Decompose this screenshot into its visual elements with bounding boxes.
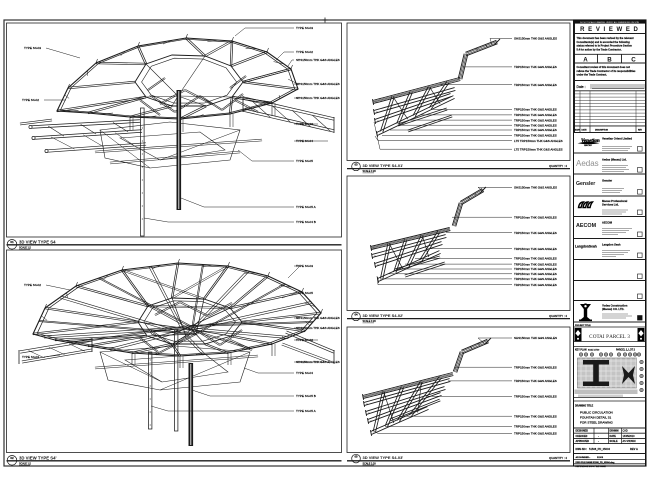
svg-text:DATE: DATE [582,129,588,132]
svg-text:02: 02 [10,456,14,460]
svg-text:REV A: REV A [630,447,638,451]
svg-text:SHS150mm THK G&S ANGLES: SHS150mm THK G&S ANGLES [296,360,340,364]
svg-text:TYPE S4-02: TYPE S4-02 [22,98,39,102]
svg-text:TYPE S4-02: TYPE S4-02 [296,50,313,54]
svg-text:TRP150mm THK G&S ANGLES: TRP150mm THK G&S ANGLES [514,257,557,261]
svg-text:FOR STEEL DRAWING: FOR STEEL DRAWING [580,421,613,425]
svg-text:FOUNTAIN DETAIL 31: FOUNTAIN DETAIL 31 [580,416,612,420]
svg-text:under the Trade Contract.: under the Trade Contract. [577,74,608,77]
svg-text:Langdon Seah: Langdon Seah [602,243,621,247]
svg-text:TYPE S4-05 A: TYPE S4-05 A [296,409,317,413]
svg-text:TRP150mm THK G&S ANGLES: TRP150mm THK G&S ANGLES [514,379,557,383]
svg-text:TRP150mm THK G&S ANGLES: TRP150mm THK G&S ANGLES [514,108,557,112]
svg-text:-: - [598,440,599,443]
svg-text:Consultant review of this docu: Consultant review of this document does … [577,66,631,69]
svg-text:3D VIEW TYPE S4': 3D VIEW TYPE S4' [19,455,57,460]
svg-text:TYPE S4-03: TYPE S4-03 [296,26,313,30]
svg-text:KEY PLAN: KEY PLAN [575,349,587,352]
svg-text:SHS150mm THK G&S ANGLES: SHS150mm THK G&S ANGLES [296,58,340,62]
svg-text:3D VIEW TYPE S4-02': 3D VIEW TYPE S4-02' [363,313,404,318]
svg-text:Consultants(s) and is accorded: Consultants(s) and is accorded the follo… [577,41,631,44]
svg-text:TRP150mm THK G&S ANGLES: TRP150mm THK G&S ANGLES [514,425,557,429]
svg-text:C OTAI P ARCEL 3: C OTAI P ARCEL 3 [589,335,630,340]
svg-text:TRP150mm THK G&S ANGLES: TRP150mm THK G&S ANGLES [514,65,557,69]
svg-text:51508_PD_05004: 51508_PD_05004 [589,447,610,451]
svg-text:TYPE S4-04 B: TYPE S4-04 B [296,220,316,224]
svg-text:3D VIEW TYPE S4: 3D VIEW TYPE S4 [19,239,56,244]
svg-text:QUANTITY : 4: QUANTITY : 4 [549,314,567,318]
svg-text:relieve the Trade Contractor o: relieve the Trade Contractor of its resp… [577,70,637,73]
svg-text:SHS150mm THK G&S ANGLES: SHS150mm THK G&S ANGLES [296,316,340,320]
svg-text:CAD: CAD [623,430,628,433]
svg-text:04: 04 [354,312,358,316]
svg-text:TRP150mm THK G&S ANGLES: TRP150mm THK G&S ANGLES [514,395,557,399]
svg-text:status referred to in Projec: status referred to in Project Procedure … [577,45,633,48]
svg-text:REFERENCE DWG FILE NAME: REFERENCE DWG FILE NAME [576,465,607,468]
svg-text:-: - [598,435,599,438]
svg-text:PUBLIC CIRCULATION: PUBLIC CIRCULATION [580,411,613,415]
svg-text:SCALE 1:2: SCALE 1:2 [19,247,31,250]
svg-text:TRP150mm THK G&S ANGLES: TRP150mm THK G&S ANGLES [514,365,557,369]
svg-text:SHS150mm THK G&S ANGLES: SHS150mm THK G&S ANGLES [296,82,340,86]
svg-text:APPROVED: APPROVED [576,440,590,443]
svg-text:Gensler: Gensler [602,179,612,183]
svg-text:Date :: Date : [577,85,586,89]
svg-text:03: 03 [354,162,358,166]
svg-text:TRP150mm THK G&S ANGLES: TRP150mm THK G&S ANGLES [514,262,557,266]
svg-text:SHS150mm THK G&S ANGLES: SHS150mm THK G&S ANGLES [514,336,557,340]
svg-text:AR NUMBER :: AR NUMBER : [576,456,591,459]
svg-text:DATE: DATE [610,435,617,438]
svg-text:TRP150mm THK G&S ANGLES: TRP150mm THK G&S ANGLES [514,267,557,271]
svg-text:TYPE S4-05: TYPE S4-05 [296,159,313,163]
svg-text:TRP150mm THK G&S ANGLES: TRP150mm THK G&S ANGLES [514,83,557,87]
svg-text:TRP150mm THK G&S ANGLES: TRP150mm THK G&S ANGLES [514,118,557,122]
svg-text:AS SHOWN: AS SHOWN [623,440,636,443]
svg-text:A: A [583,56,588,63]
svg-text:TYPE S4-02: TYPE S4-02 [296,338,313,342]
svg-text:Macau Professional: Macau Professional [602,199,627,203]
svg-text:51508: 51508 [597,457,604,459]
svg-text:TRP150mm THK G&S ANGLES: TRP150mm THK G&S ANGLES [514,113,557,117]
svg-text:C: C [631,56,636,63]
svg-text:R E V I E W E D: R E V I E W E D [580,27,639,33]
svg-text:QUANTITY : 4: QUANTITY : 4 [549,164,567,168]
svg-text:TRP150mm THK G&S ANGLES: TRP150mm THK G&S ANGLES [514,247,557,251]
svg-text:REV: REV [638,130,643,132]
svg-text:TYPE S4-03: TYPE S4-03 [22,355,39,359]
svg-text:DWG FILE NAME 51508_PD_05004.d: DWG FILE NAME 51508_PD_05004.dwg [576,461,616,464]
svg-text:DWG NO :: DWG NO : [576,448,588,451]
svg-text:TYPE S4-05 A: TYPE S4-05 A [296,205,317,209]
svg-text:Gensler: Gensler [576,181,595,187]
svg-text:TYPE S4-03: TYPE S4-03 [296,122,313,126]
svg-text:MACAU: MACAU [584,144,592,147]
svg-text:(Macau) CO. LTD.: (Macau) CO. LTD. [602,307,624,311]
svg-text:TRP150mm THK G&S ANGLES: TRP150mm THK G&S ANGLES [514,231,557,235]
svg-text:Services Ltd.: Services Ltd. [602,203,619,207]
svg-text:TRP150mm THK G&S ANGLES: TRP150mm THK G&S ANGLES [514,128,557,132]
svg-text:DRAWING TITLE: DRAWING TITLE [575,405,594,408]
svg-text:TYPE S4-04: TYPE S4-04 [296,139,313,143]
svg-text:SHS150mm THK G&S ANGLES: SHS150mm THK G&S ANGLES [514,37,557,41]
svg-text:PARCEL 1, LOT 2: PARCEL 1, LOT 2 [616,349,636,352]
svg-text:SCALE: SCALE [610,440,619,443]
svg-text:B: B [607,56,612,63]
svg-text:AECOM: AECOM [576,223,597,229]
svg-text:SCALE 1:7500: SCALE 1:7500 [588,349,599,352]
svg-text:SHS150mm THK G&S ANGLES: SHS150mm THK G&S ANGLES [296,326,340,330]
svg-text:QUANTITY : 4: QUANTITY : 4 [549,456,567,460]
svg-text:05: 05 [354,455,358,459]
svg-text:TRP150mm THK G&S ANGLES: TRP150mm THK G&S ANGLES [514,283,557,287]
svg-text:3D VIEW TYPE S4-01': 3D VIEW TYPE S4-01' [363,163,404,168]
svg-text:L75 TRP150mm THK G&S ANGLES: L75 TRP150mm THK G&S ANGLES [514,139,563,143]
svg-text:5.4 for action by the Trade Co: 5.4 for action by the Trade Contractor. [577,48,622,51]
svg-text:3D VIEW TYPE S4-03': 3D VIEW TYPE S4-03' [363,455,404,460]
svg-text:Venetian Orient Limited: Venetian Orient Limited [602,137,632,141]
svg-text:CHECKED: CHECKED [576,435,588,438]
svg-text:DRAWN: DRAWN [610,430,619,433]
svg-text:TRP150mm THK G&S ANGLES: TRP150mm THK G&S ANGLES [514,134,557,138]
svg-text:SHS150mm THK G&S ANGLES: SHS150mm THK G&S ANGLES [296,96,340,100]
svg-text:DO NOT SCALE DRAWING. VERIFY A: DO NOT SCALE DRAWING. VERIFY ALL DIMENSI… [580,21,640,24]
svg-text:DESIGNED: DESIGNED [576,430,589,433]
svg-text:TRP150mm THK G&S ANGLES: TRP150mm THK G&S ANGLES [514,123,557,127]
svg-text:This document has been revised: This document has been revised by the re… [577,37,634,40]
svg-text:AECOM: AECOM [602,221,613,225]
svg-text:TYPE S4-05 B: TYPE S4-05 B [296,394,316,398]
svg-text:TYPE S4-05: TYPE S4-05 [296,291,313,295]
svg-text:TYPE S4-03: TYPE S4-03 [24,46,41,50]
svg-text:DESCRIPTION: DESCRIPTION [595,130,609,132]
svg-text:TRP150mm THK G&S ANGLES: TRP150mm THK G&S ANGLES [514,414,557,418]
svg-text:LangdonSeah: LangdonSeah [575,245,597,249]
svg-text:L75 TRP150mm THK G&S ANGLES: L75 TRP150mm THK G&S ANGLES [514,147,563,151]
svg-text:SHS150mm THK G&S ANGLES: SHS150mm THK G&S ANGLES [514,186,557,190]
svg-text:Aedas (Macau) Ltd.: Aedas (Macau) Ltd. [602,158,627,162]
svg-text:TYPE S4-02: TYPE S4-02 [24,283,41,287]
svg-text:TYPE S4-03: TYPE S4-03 [296,264,313,268]
svg-text:TRP150mm THK G&S ANGLES: TRP150mm THK G&S ANGLES [514,432,557,436]
svg-text:TRP150mm THK G&S ANGLES: TRP150mm THK G&S ANGLES [514,272,557,276]
svg-text:Yodea Construction: Yodea Construction [602,304,628,308]
svg-text:14/05/2010: 14/05/2010 [623,435,636,438]
svg-text:01: 01 [10,240,14,244]
svg-text:TRP150mm THK G&S ANGLES: TRP150mm THK G&S ANGLES [514,277,557,281]
svg-text:TRP150mm THK G&S ANGLES: TRP150mm THK G&S ANGLES [514,215,557,219]
svg-text:TYPE S4-04: TYPE S4-04 [296,371,313,375]
svg-text:Aedas: Aedas [576,159,599,168]
